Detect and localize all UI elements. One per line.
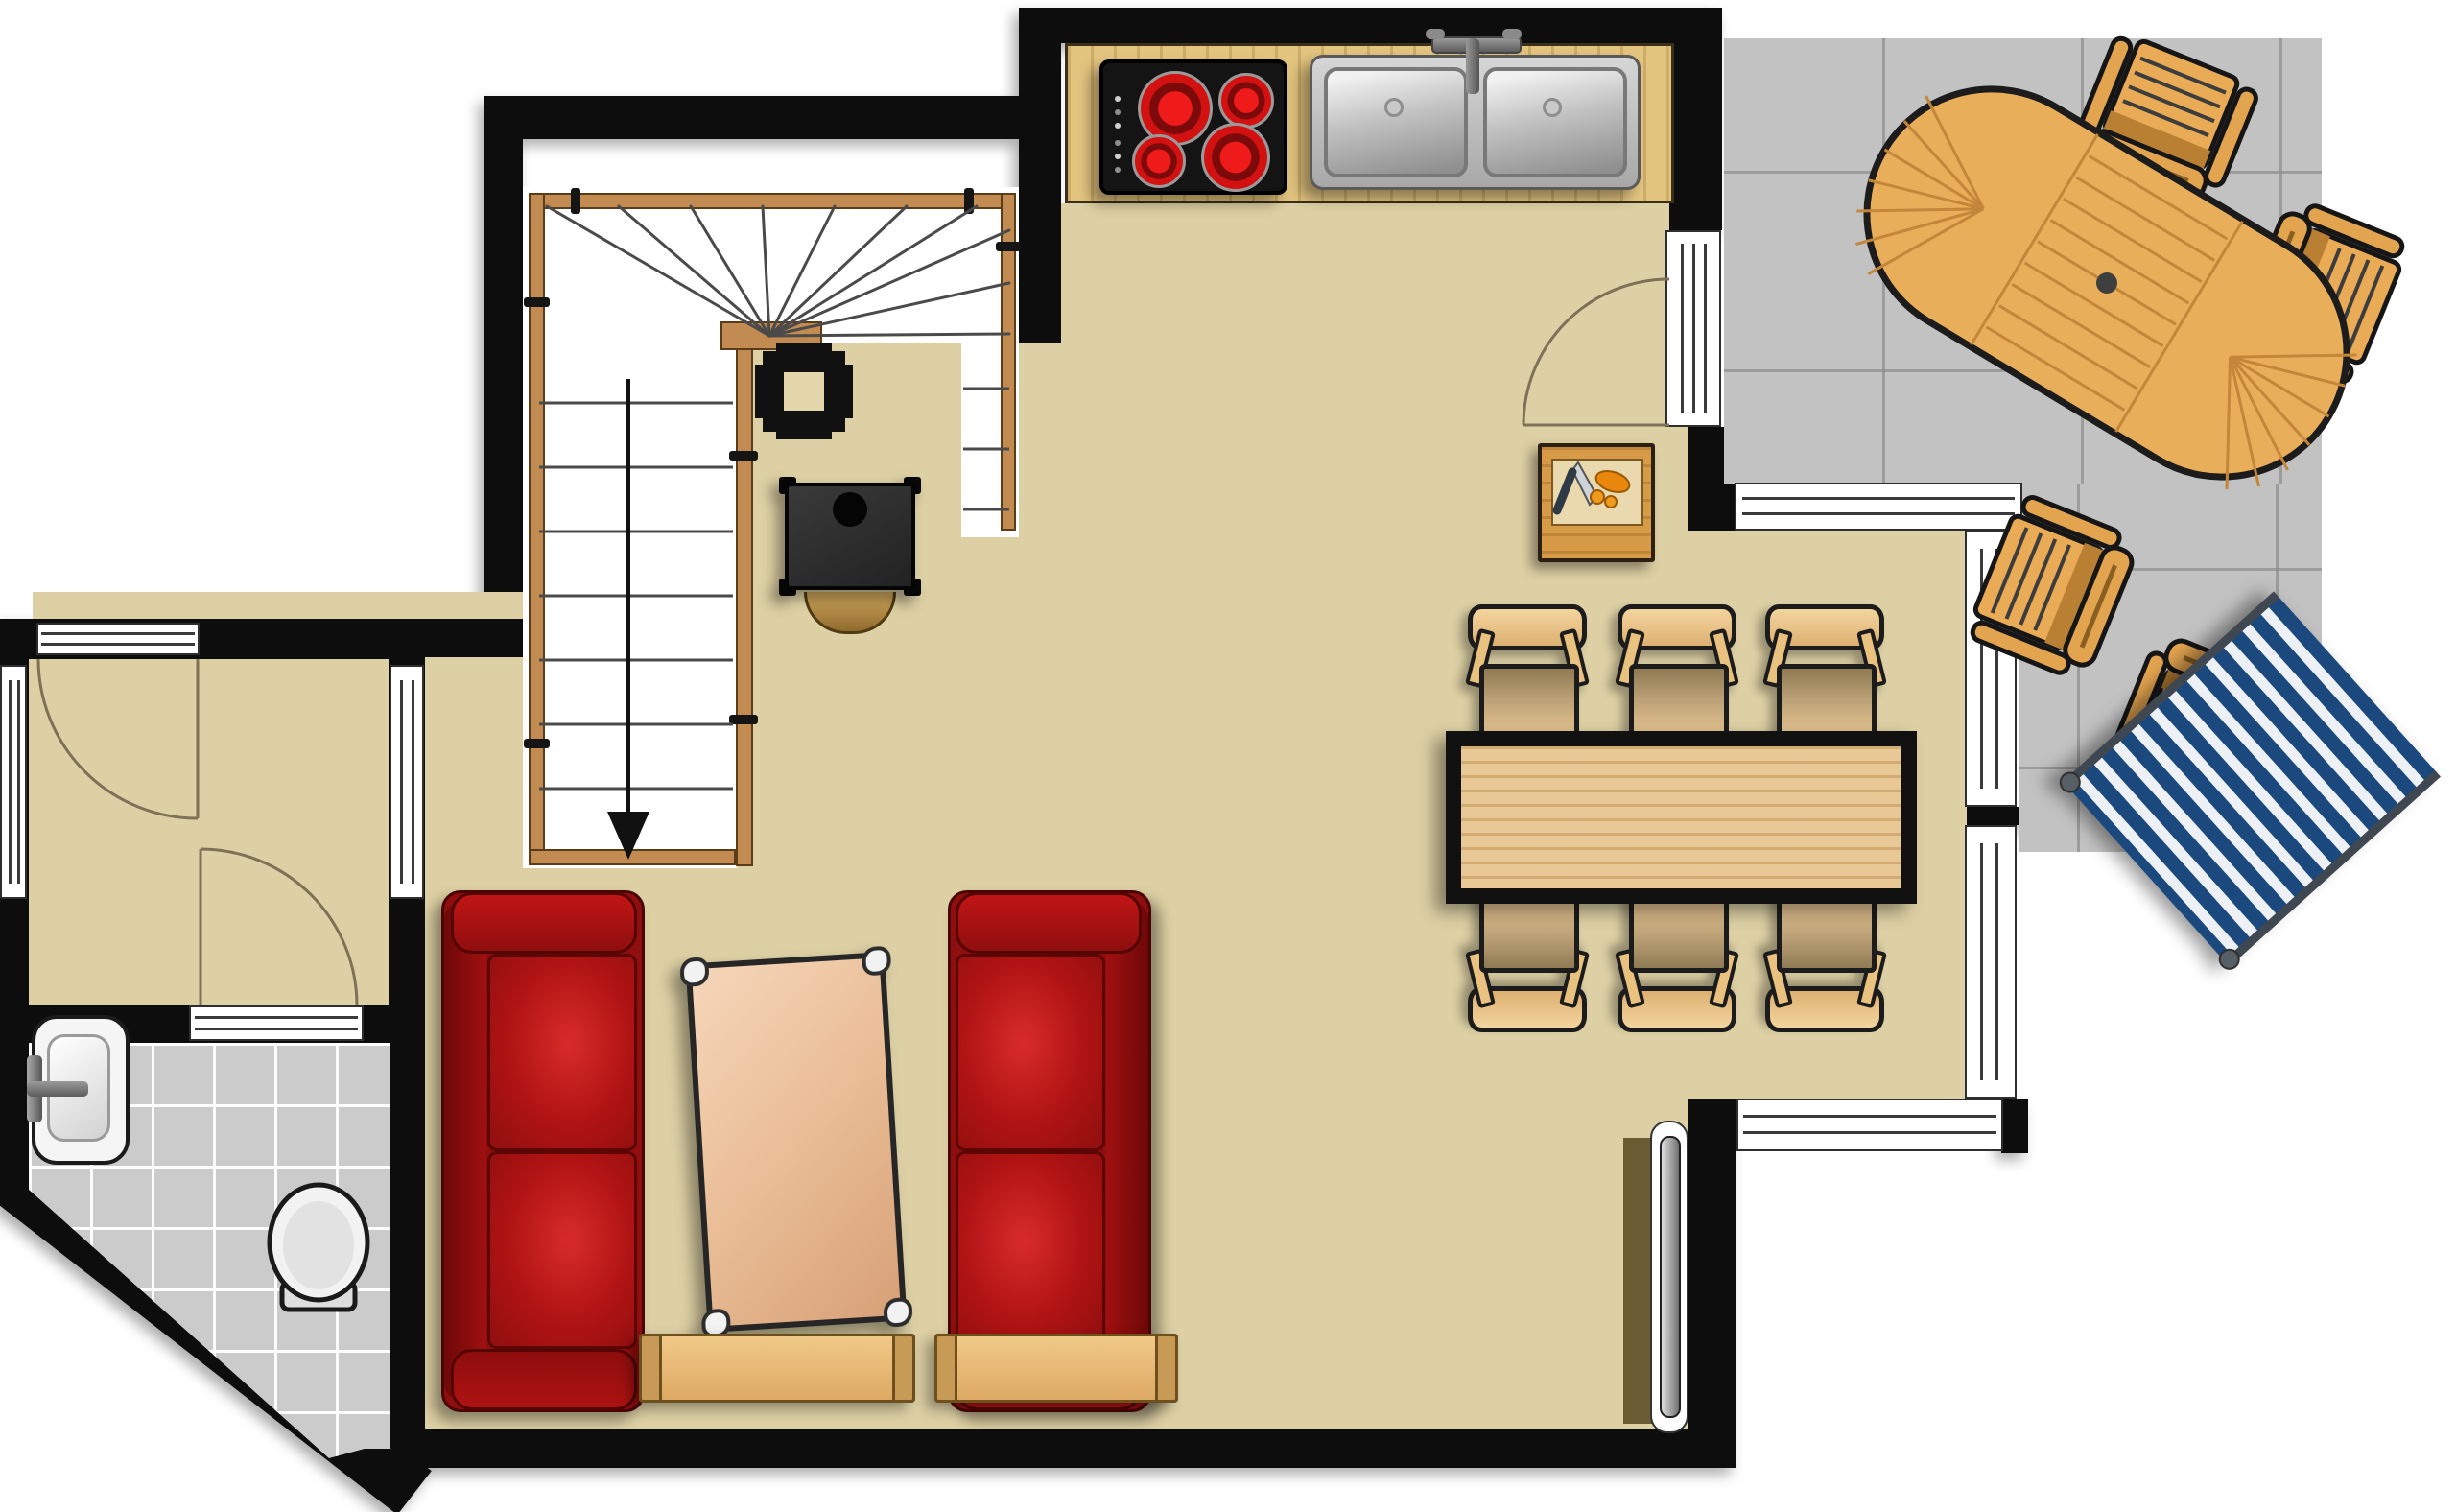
threshold-line (195, 1016, 359, 1019)
window-line (1742, 497, 2015, 500)
cooktop[interactable] (1099, 59, 1287, 195)
door-glazing-line (1704, 244, 1707, 413)
window-line (412, 680, 414, 883)
dining-chair-bottom-1[interactable] (1465, 902, 1590, 1032)
wood-stove (779, 477, 921, 596)
window-line (1980, 843, 1983, 1080)
window-bay-south (1736, 1099, 2003, 1151)
window-west-wall (0, 665, 27, 899)
cutting-board-items (1542, 447, 1651, 558)
entry-door-leaf[interactable] (1660, 1136, 1681, 1418)
table-foot (679, 957, 710, 987)
stairwell-band (523, 187, 1019, 343)
sofa-left (441, 890, 645, 1412)
window-line (400, 680, 403, 883)
sink-bowl-left (1324, 67, 1468, 177)
window-line (1995, 843, 1998, 1080)
floor-plan (0, 0, 2456, 1512)
stove-flue-knob (833, 492, 867, 527)
window-line (17, 680, 20, 883)
cooktop-controls (1115, 96, 1121, 102)
entry-door-mat (1623, 1138, 1652, 1424)
window-line (9, 680, 12, 883)
window-bay-north (1735, 483, 2022, 531)
carrot-slice (1591, 490, 1604, 504)
burner-large-2 (1201, 123, 1270, 192)
window-line (1743, 1115, 1995, 1118)
chimney-tab-bottom (776, 432, 832, 439)
sink-drain-right (1543, 98, 1562, 117)
burner-large-1 (1138, 71, 1213, 146)
bench-left (639, 1334, 915, 1403)
window-bay-east-lower (1965, 825, 2017, 1099)
dining-chair-bottom-3[interactable] (1762, 902, 1887, 1032)
kitchen-floor (1061, 203, 1669, 343)
door-glazing-line (1681, 244, 1684, 413)
coffee-table (685, 952, 907, 1333)
dining-chair-top-3[interactable] (1762, 604, 1887, 735)
sink-bowl-right (1483, 67, 1627, 177)
chimney-tab-top (776, 343, 832, 351)
knife-handle (1557, 472, 1572, 510)
dining-chair-bottom-2[interactable] (1615, 902, 1739, 1032)
window-hall-partition (390, 665, 424, 899)
kitchen-faucet-handle-left[interactable] (1426, 29, 1445, 39)
threshold-line (195, 1028, 359, 1030)
kitchen-faucet-stem (1466, 38, 1479, 94)
chimney-tab-left (755, 365, 763, 418)
patio-tiles-upper (1724, 38, 2322, 484)
dining-chair-top-2[interactable] (1615, 604, 1739, 735)
window-bay-east-upper (1965, 531, 2017, 807)
carrot-slice (1605, 496, 1617, 508)
burner-small-2 (1132, 134, 1186, 188)
window-line (1742, 512, 2015, 515)
threshold-line (41, 632, 194, 635)
bathroom-faucet-spout (27, 1081, 88, 1097)
cutting-board (1538, 443, 1655, 562)
chimney-opening (784, 372, 824, 411)
floor-strip-north-of-hall (33, 592, 523, 619)
threshold-line (41, 643, 194, 646)
sink-drain-left (1384, 98, 1404, 117)
window-line (1995, 549, 1998, 789)
bench-right (934, 1334, 1178, 1403)
patio-door-frame[interactable] (1665, 230, 1721, 427)
burner-small-1 (1218, 73, 1274, 129)
dining-chair-top-1[interactable] (1465, 604, 1590, 735)
door-glazing-line (1692, 244, 1695, 413)
stairwell-entry-column (961, 187, 1019, 537)
chimney-tab-right (845, 365, 853, 418)
window-line (1743, 1131, 1995, 1134)
bathroom-door-threshold (189, 1005, 364, 1041)
front-door-threshold (36, 623, 200, 655)
window-line (1980, 549, 1983, 789)
dining-table (1446, 731, 1917, 904)
kitchen-faucet-handle-right[interactable] (1502, 29, 1522, 39)
hallway-floor (29, 659, 389, 1005)
